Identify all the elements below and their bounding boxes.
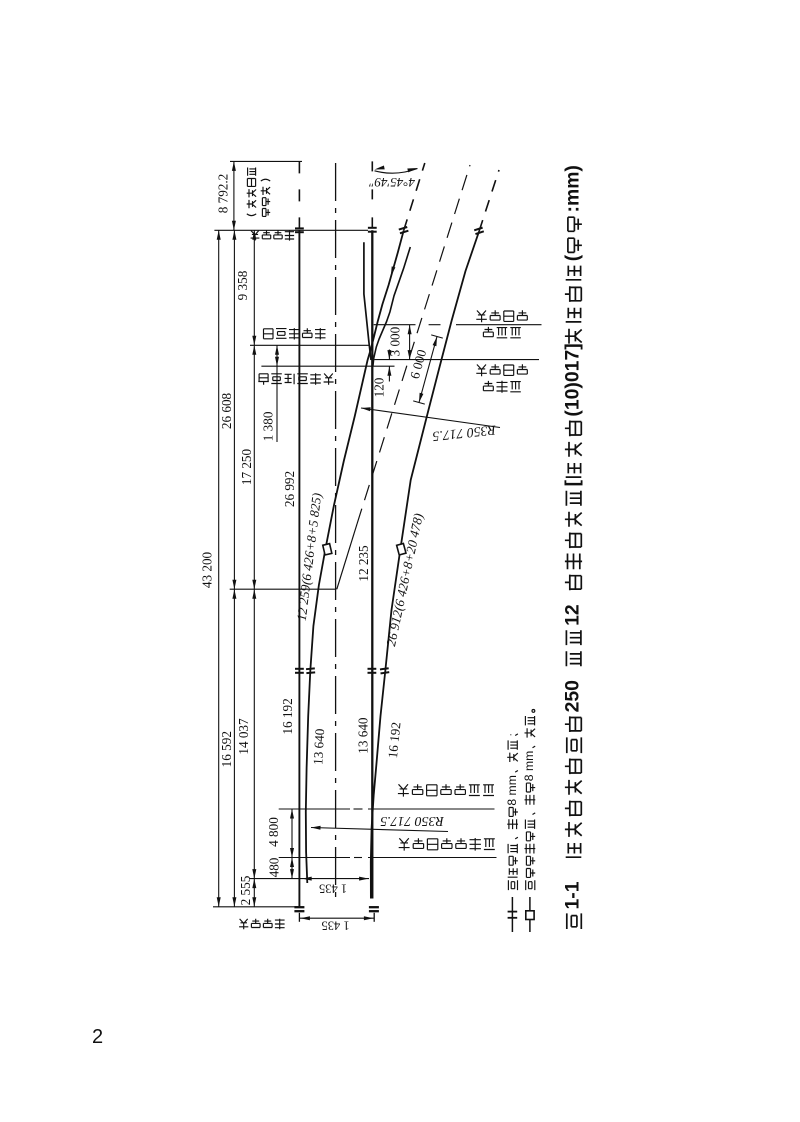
svg-text:16 592: 16 592	[219, 731, 234, 767]
svg-text:14 037: 14 037	[236, 718, 251, 755]
svg-text:16 192: 16 192	[280, 698, 295, 734]
svg-text:[: [	[562, 480, 584, 487]
svg-text:13 640: 13 640	[356, 717, 371, 754]
svg-text:1-1: 1-1	[562, 881, 584, 909]
svg-text:2 555: 2 555	[238, 875, 253, 905]
svg-text:(: (	[562, 254, 584, 261]
svg-text:4 800: 4 800	[266, 817, 281, 847]
svg-text:2: 2	[92, 1026, 103, 1048]
svg-text:1 435: 1 435	[321, 918, 349, 932]
svg-text:8 mm: 8 mm	[505, 775, 519, 805]
svg-text:3 000: 3 000	[388, 326, 403, 356]
svg-text:26 608: 26 608	[219, 392, 234, 429]
svg-text:26 992: 26 992	[282, 471, 297, 507]
svg-text:13 640: 13 640	[310, 728, 327, 765]
svg-text:1 435: 1 435	[319, 881, 347, 895]
svg-text:8 mm: 8 mm	[522, 751, 536, 781]
svg-text:1 380: 1 380	[261, 411, 276, 441]
svg-text:12: 12	[562, 604, 584, 626]
svg-text:(10)017]: (10)017]	[562, 343, 584, 416]
svg-text:9 358: 9 358	[235, 270, 250, 300]
svg-text:480: 480	[267, 857, 282, 877]
svg-text:8 792.2: 8 792.2	[216, 174, 231, 214]
svg-text:43 200: 43 200	[200, 551, 215, 588]
svg-text::mm): :mm)	[562, 165, 584, 212]
svg-text:R350 717.5: R350 717.5	[380, 814, 445, 829]
svg-text:4°45′49″: 4°45′49″	[368, 175, 415, 190]
svg-text:12 235: 12 235	[356, 545, 371, 582]
svg-text:120: 120	[372, 377, 387, 397]
svg-text:17 250: 17 250	[239, 448, 254, 485]
svg-text:250: 250	[562, 680, 584, 712]
